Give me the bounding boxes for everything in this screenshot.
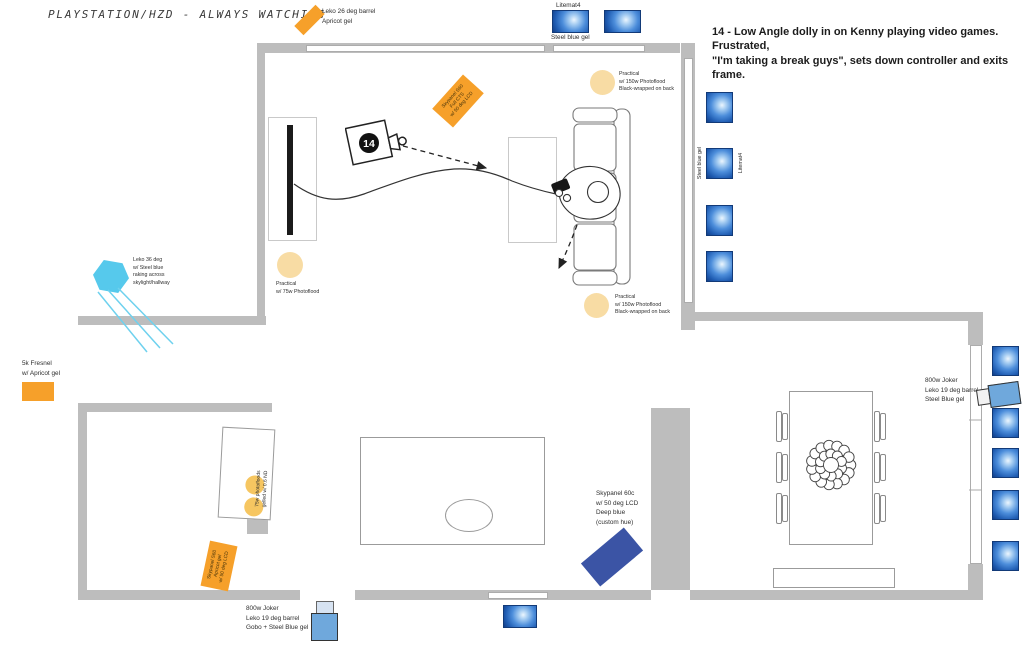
litemat-light xyxy=(992,448,1019,478)
litemat-wall-gel: Steel blue gel xyxy=(697,133,703,193)
leko26-label: Leko 26 deg barrel Apricot gel xyxy=(322,7,375,26)
litemat-light xyxy=(604,10,641,33)
wall-segment xyxy=(78,403,272,412)
litemat-light xyxy=(706,251,733,282)
litemat-light xyxy=(706,205,733,236)
counter-cabinet: 75w photofloods gelled w/ 0.6 ND xyxy=(218,427,276,521)
camera-lens-knob xyxy=(398,137,407,146)
joker-gobo-label: 800w Joker Leko 19 deg barrel Gobo + Ste… xyxy=(246,604,308,633)
wall-segment xyxy=(78,403,87,600)
skypanel-apricot-light: Skypanel S60 Apricot gel w/ 50 deg LCD xyxy=(201,541,238,592)
kitchen-island xyxy=(360,437,545,545)
skypanel-cts-light: Skypanel S60 Full CTS w/ 50 deg LCD xyxy=(432,75,484,128)
coffee-table xyxy=(508,137,557,243)
litemat-light xyxy=(706,148,733,179)
wall-segment xyxy=(695,312,983,321)
leko36-light xyxy=(93,259,129,294)
actor-kenny xyxy=(551,166,620,219)
dining-chair xyxy=(776,411,787,442)
window xyxy=(306,45,545,52)
lineart-overlay xyxy=(0,0,1024,664)
wall-segment xyxy=(968,312,983,345)
island-sink xyxy=(445,499,493,532)
practical-light xyxy=(584,293,609,318)
litemat-wall-name: Litemat4 xyxy=(738,133,744,193)
practical-label: Practical w/ 75w Photoflood xyxy=(276,281,319,296)
window xyxy=(684,58,693,303)
joker-right-label: 800w Joker Leko 19 deg barrel Steel Blue… xyxy=(925,376,978,405)
lighting-diagram: PLAYSTATION/HZD - ALWAYS WATCHING 14 - L… xyxy=(0,0,1024,664)
dining-chair xyxy=(776,493,787,524)
wall-segment xyxy=(78,316,266,325)
counter-photofloods-label: 75w photofloods gelled w/ 0.6 ND xyxy=(254,460,271,519)
camera-icon: 14 xyxy=(345,116,407,172)
leko36-label: Leko 36 deg w/ Steel blue raking across … xyxy=(133,257,170,288)
camera-direction-arrow xyxy=(403,146,486,168)
litemat-top-gel: Steel blue gel xyxy=(551,33,590,43)
skypanel-deep-blue-label: Skypanel 60c w/ 50 deg LCD Deep blue (cu… xyxy=(596,489,638,527)
window xyxy=(488,592,548,599)
litemat-light xyxy=(503,605,537,628)
dining-table xyxy=(789,391,873,545)
dining-chair xyxy=(874,493,885,524)
sideboard xyxy=(773,568,895,588)
skypanel-deep-blue-light xyxy=(581,528,643,587)
dining-chair xyxy=(776,452,787,483)
practical-light xyxy=(277,252,303,278)
scene-description: 14 - Low Angle dolly in on Kenny playing… xyxy=(712,25,1018,82)
page-title: PLAYSTATION/HZD - ALWAYS WATCHING xyxy=(48,8,326,21)
couch xyxy=(573,108,630,285)
wall-segment xyxy=(690,590,968,600)
actor-exit-arrow xyxy=(559,225,577,268)
litemat-light xyxy=(992,490,1019,520)
dining-chair xyxy=(874,411,885,442)
tv-screen xyxy=(287,125,293,235)
fresnel5k-label: 5k Fresnel w/ Apricot gel xyxy=(22,359,60,378)
pantry-block xyxy=(651,408,690,590)
joker-gobo-light xyxy=(311,613,338,641)
joker-right-light xyxy=(988,381,1022,408)
dining-chair xyxy=(874,452,885,483)
practical-light xyxy=(590,70,615,95)
practical-label: Practical w/ 150w Photoflood Black-wrapp… xyxy=(615,294,670,317)
litemat-light xyxy=(992,408,1019,438)
fresnel5k-light xyxy=(22,382,54,401)
camera-shot-number: 14 xyxy=(363,138,375,150)
practical-label: Practical w/ 150w Photoflood Black-wrapp… xyxy=(619,71,674,94)
litemat-light xyxy=(706,92,733,123)
wall-segment xyxy=(78,590,300,600)
litemat-light xyxy=(552,10,589,33)
litemat-light xyxy=(992,346,1019,376)
litemat-light xyxy=(992,541,1019,571)
wall-segment xyxy=(257,43,265,325)
wall-segment xyxy=(968,564,983,600)
window xyxy=(553,45,645,52)
